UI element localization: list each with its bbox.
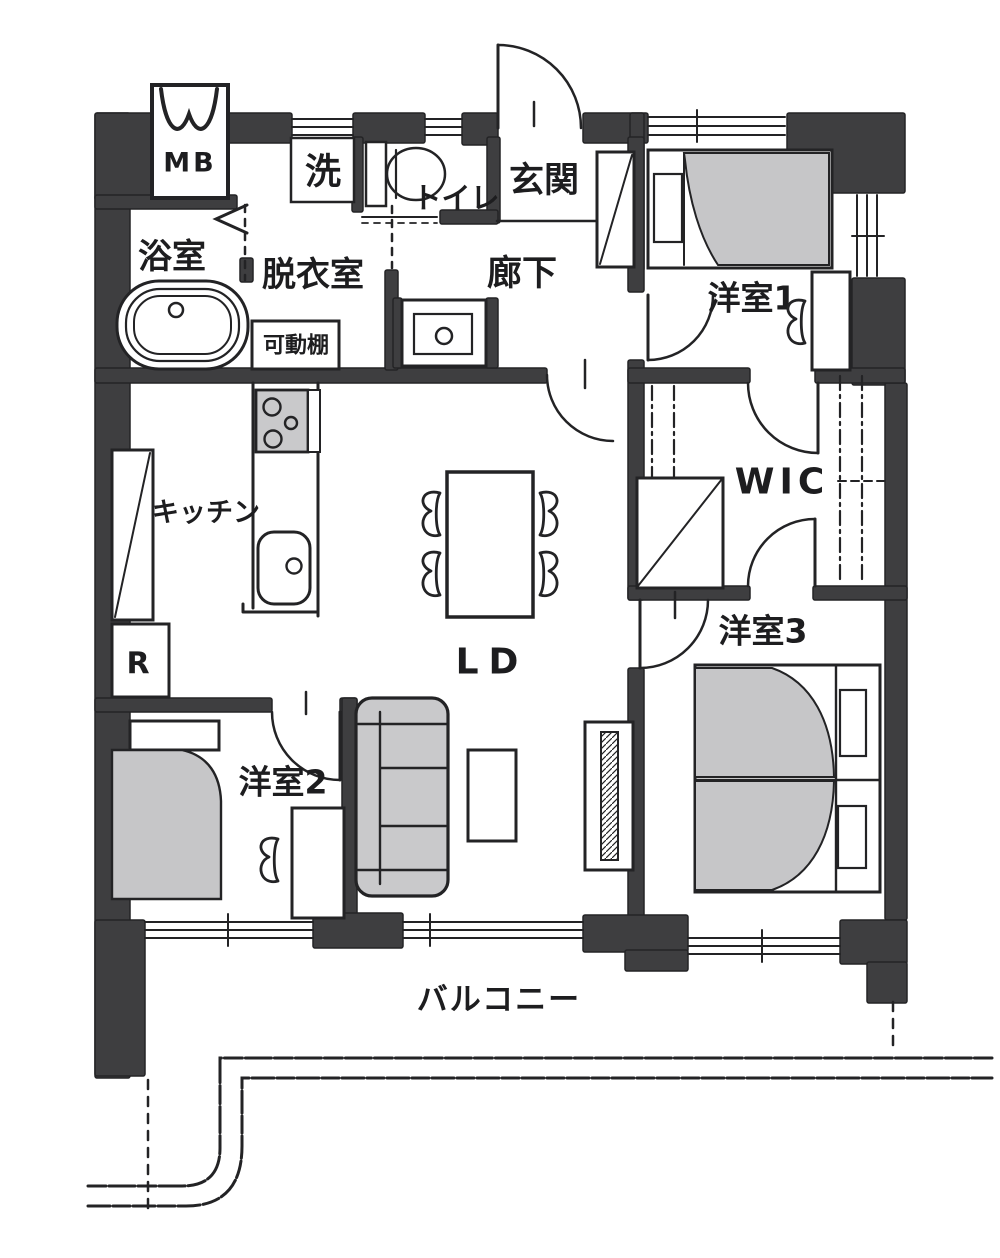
chair — [423, 552, 440, 596]
chair — [788, 300, 805, 344]
wall-segment — [583, 915, 688, 952]
bathroom-area: 浴室 — [117, 237, 248, 369]
floor-plan-page: MB 浴室 洗 トイレ 玄関 廊下 脱衣室 可動棚 — [0, 0, 1000, 1258]
bed-mattress — [112, 750, 221, 899]
living-dining-area: LD — [356, 472, 633, 896]
meter-box: MB — [152, 85, 228, 198]
desk — [812, 272, 850, 370]
wall-segment — [95, 920, 145, 1076]
entrance-door — [498, 45, 581, 128]
bed-headboard — [130, 721, 219, 750]
bedroom2-label: 洋室2 — [239, 763, 328, 802]
laundry-label: 洗 — [305, 152, 341, 193]
toilet-door — [362, 217, 437, 223]
balcony-edge-inner — [88, 1078, 992, 1206]
dressing-room-area: 脱衣室 可動棚 — [252, 255, 486, 369]
balcony-area: バルコニー — [88, 982, 992, 1212]
bed-pillow — [654, 174, 682, 242]
chair — [540, 492, 557, 536]
toilet-label: トイレ — [412, 181, 499, 215]
bedroom3-label: 洋室3 — [719, 612, 808, 651]
window — [688, 930, 840, 962]
sofa — [356, 698, 448, 896]
window — [292, 119, 353, 135]
window — [425, 119, 462, 135]
wall-segment — [95, 113, 155, 200]
wall-segment — [95, 698, 272, 712]
wall-segment — [840, 920, 907, 964]
entrance-label: 玄関 — [509, 161, 579, 201]
balcony-boundary-dash — [148, 1002, 893, 1212]
bedroom1-label: 洋室1 — [708, 279, 797, 318]
tv — [601, 732, 618, 860]
bed-pillow — [838, 806, 866, 868]
bedroom3-area: 洋室3 — [695, 612, 880, 893]
balcony-label: バルコニー — [417, 982, 581, 1018]
window — [852, 195, 884, 276]
laundry-area: 洗 — [291, 138, 354, 202]
dressing-room-label: 脱衣室 — [262, 255, 364, 295]
bed-pillow — [840, 690, 866, 756]
wall-segment — [228, 113, 292, 143]
wall-segment — [625, 950, 688, 971]
wall-segment — [628, 368, 750, 383]
wic-north-door — [748, 383, 818, 453]
wall-segment — [353, 113, 425, 143]
bathroom-label: 浴室 — [138, 237, 206, 277]
wall-segment — [867, 962, 907, 1003]
wic-area: WIC — [637, 376, 884, 588]
toilet-area: トイレ — [366, 142, 500, 215]
wall-segment — [240, 258, 253, 282]
window — [648, 110, 785, 142]
toilet-tank — [366, 142, 386, 206]
stove — [256, 390, 308, 452]
bedroom1-door — [648, 295, 713, 360]
kitchen-label: キッチン — [152, 498, 260, 529]
hallway-label: 廊下 — [487, 254, 557, 294]
bedroom2-area: 洋室2 — [112, 721, 344, 918]
window — [145, 914, 313, 946]
bathtub-inner2 — [134, 296, 231, 354]
desk — [292, 808, 344, 918]
entrance-area: 玄関 — [497, 152, 634, 267]
bedroom1-area: 洋室1 — [648, 150, 850, 370]
dining-table — [447, 472, 533, 617]
stove-panel — [308, 390, 320, 452]
side-table — [468, 750, 516, 841]
wic-label: WIC — [735, 462, 830, 503]
washbasin — [402, 300, 486, 366]
living-door — [547, 360, 613, 441]
wall-segment — [813, 586, 907, 600]
window — [403, 914, 583, 946]
wall-segment — [885, 383, 907, 920]
chair — [540, 552, 557, 596]
hallway-area: 廊下 — [487, 254, 557, 294]
living-dining-label: LD — [456, 642, 529, 683]
kitchen-area: キッチン R — [112, 383, 320, 697]
chair — [261, 838, 278, 882]
wall-segment — [486, 298, 498, 368]
floor-plan-drawing: MB 浴室 洗 トイレ 玄関 廊下 脱衣室 可動棚 — [0, 0, 1000, 1258]
chair — [423, 492, 440, 536]
mb-label: MB — [163, 148, 216, 179]
movable-shelf-label: 可動棚 — [263, 334, 329, 359]
refrigerator-label: R — [126, 647, 149, 682]
